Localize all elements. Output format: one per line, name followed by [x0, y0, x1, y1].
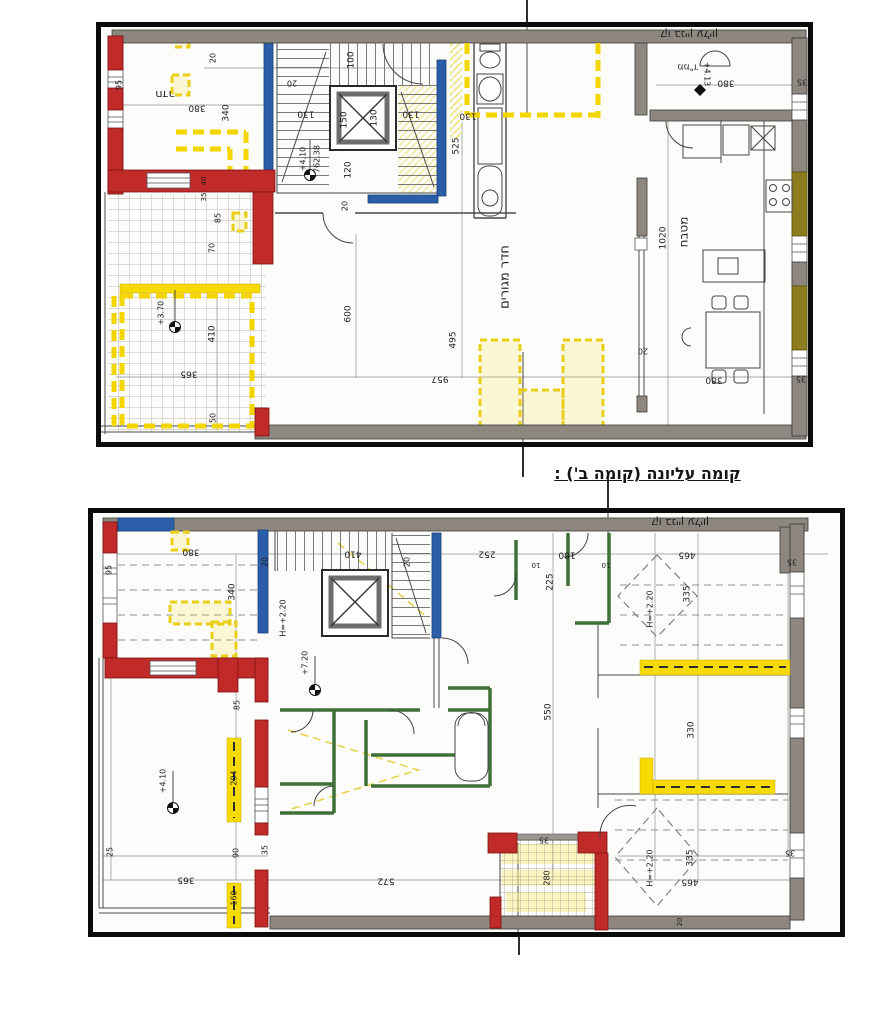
dimension-label: 380 — [188, 103, 205, 113]
dimension-label: 95 — [115, 80, 124, 90]
dimension-label: +4.13 — [703, 62, 712, 87]
dimension-label: 150 — [340, 111, 350, 128]
dimension-label: 495 — [449, 331, 459, 348]
dimension-label: 20 — [403, 557, 412, 567]
dimension-label: +4.10 — [159, 769, 168, 794]
dimension-label: חדר מגורים — [498, 245, 513, 309]
dimension-label: 160 — [230, 890, 239, 905]
dimension-label: 120 — [344, 161, 354, 178]
dimension-label: מטבח — [677, 217, 691, 248]
dimension-label: 335 — [686, 849, 696, 866]
dimension-label: 35 — [796, 375, 806, 384]
highlight-band — [120, 284, 260, 293]
dimension-label: 294 — [230, 770, 239, 785]
dimension-label: 410 — [344, 549, 361, 559]
dimension-label: 35 — [785, 849, 795, 858]
dimension-label: 340 — [228, 583, 238, 600]
section-line — [526, 0, 528, 23]
dimension-label: H=+2.20 — [279, 599, 288, 636]
left-perimeter-wall — [103, 522, 117, 658]
dimension-label: 957 — [431, 374, 448, 384]
dimension-label: 130 — [402, 109, 419, 119]
dimension-label: קו בניין עליון — [660, 28, 718, 41]
dimension-label: 85 — [233, 700, 242, 710]
level-marker — [170, 322, 181, 333]
dimension-label: H=+2.20 — [646, 849, 655, 886]
dimension-label: +7.20 — [301, 651, 310, 676]
dimension-label: 85 — [214, 213, 223, 223]
floor-plan-a: קו בניין עליוןחדר38034020201001301501301… — [96, 22, 813, 447]
toilet-icon — [480, 44, 500, 51]
dimension-label: 90 — [232, 848, 241, 858]
dimension-label: 762.38 — [313, 145, 322, 173]
dimension-label: 252 — [478, 549, 495, 559]
level-marker — [168, 803, 179, 814]
dimension-label: 365 — [180, 369, 197, 379]
dimension-label: +3.70 — [157, 301, 166, 326]
level-marker — [310, 685, 321, 696]
dimension-label: 25 — [106, 847, 115, 857]
dimension-label: 35 — [261, 845, 270, 855]
dimension-label: 465 — [681, 877, 698, 887]
dimension-label: 1020 — [659, 226, 669, 249]
dimension-label: 410 — [208, 325, 218, 342]
dimension-label: +4.10 — [299, 147, 308, 172]
section-line — [518, 937, 520, 955]
dimension-label: 465 — [678, 550, 695, 560]
dimension-label: 10 — [602, 561, 611, 569]
sink-icon — [479, 77, 501, 101]
scanned-floor-plan-page: קו בניין עליוןחדר38034020201001301501301… — [0, 0, 891, 1024]
section-line — [607, 479, 609, 509]
dimension-label: 70 — [208, 243, 217, 253]
dimension-label: קו בניין עליון — [651, 516, 709, 529]
dimension-label: 35 — [787, 558, 797, 567]
dimension-label: 130 — [297, 109, 314, 119]
dimension-label: 95 — [105, 565, 114, 575]
elevator-shaft — [322, 570, 388, 636]
dimension-label: 335 — [683, 585, 693, 602]
dimension-label: 130 — [459, 111, 476, 121]
dimension-label: 330 — [687, 721, 697, 738]
dimension-label: 50 — [209, 413, 218, 423]
dimension-label: ממ"ד — [677, 62, 698, 72]
dimension-label: 380 — [717, 78, 734, 88]
dimension-label: 20 — [341, 201, 350, 211]
dimension-label: 225 — [546, 573, 556, 590]
toilet-icon — [480, 52, 500, 68]
dimension-label: 10 — [532, 561, 541, 569]
dimension-label: 20 — [676, 918, 684, 927]
dimension-label: 20 — [261, 557, 270, 567]
dimension-label: 35 — [200, 193, 208, 202]
dimension-label: 20 — [638, 347, 648, 356]
dimension-label: 130 — [370, 109, 380, 126]
right-perimeter-wall — [790, 524, 804, 920]
dimension-label: 340 — [222, 104, 232, 121]
dimension-label: 380 — [705, 375, 722, 385]
dimension-label: 280 — [543, 870, 552, 885]
dimension-label: 180 — [558, 550, 575, 560]
dimension-label: H=+2.20 — [646, 590, 655, 627]
dimension-label: 40 — [200, 177, 208, 186]
floor-plan-b: קו בניין עליון38020340410202521801010225… — [88, 508, 845, 937]
dimension-label: 572 — [377, 876, 394, 886]
dimension-label: חדר — [155, 88, 174, 101]
dimension-label: 20 — [209, 53, 218, 63]
dimension-label: 600 — [344, 305, 354, 322]
bathtub-icon — [455, 713, 488, 781]
dimension-label: 20 — [287, 79, 297, 88]
dimension-label: 35 — [539, 836, 549, 845]
plan-caption: קומה עליונה (קומה ב') : — [505, 464, 790, 483]
dimension-label: 365 — [177, 875, 194, 885]
dimension-label: 525 — [452, 137, 462, 154]
dimension-label: 550 — [544, 703, 554, 720]
dimension-label: 35 — [797, 78, 807, 87]
dimension-label: 100 — [347, 51, 357, 68]
dimension-label: 380 — [182, 547, 199, 557]
